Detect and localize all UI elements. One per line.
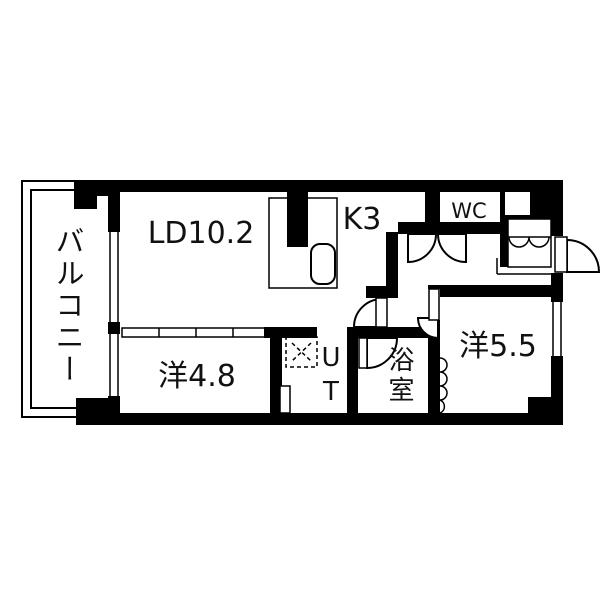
bedroom1-closet-panel xyxy=(280,386,290,413)
label-western-room-1: 洋4.8 xyxy=(158,359,236,394)
entry-door-leaf xyxy=(555,237,567,272)
wall-balcony-block-bottom xyxy=(76,398,120,425)
topright-notch xyxy=(505,192,530,215)
wall-under-wc xyxy=(398,222,500,234)
floorplan-svg: バルコニー LD10.2 K3 WC 洋4.8 UT 浴室 洋5.5 xyxy=(0,0,600,600)
label-balcony: バルコニー xyxy=(51,226,85,386)
wall-ld-hall-foot xyxy=(366,286,398,298)
wall-bottom xyxy=(108,413,563,425)
wall-bath-top xyxy=(347,327,428,338)
bedroom2-door-leaf xyxy=(429,289,439,320)
wall-closet-left xyxy=(500,219,508,267)
wall-bath-left xyxy=(347,327,358,413)
wall-balcony-block-top-step xyxy=(74,180,97,209)
bath-door-leaf xyxy=(359,338,367,368)
label-western-room-2: 洋5.5 xyxy=(459,329,537,364)
label-living-dining: LD10.2 xyxy=(148,216,255,251)
label-toilet: WC xyxy=(451,199,486,223)
wall-bedroom2-top xyxy=(428,285,563,297)
floorplan-canvas: バルコニー LD10.2 K3 WC 洋4.8 UT 浴室 洋5.5 xyxy=(0,0,600,600)
entrance-closet-box xyxy=(508,219,551,267)
sliding-door-partition xyxy=(122,328,270,337)
ld-door-leaf xyxy=(376,298,387,327)
label-utility: UT xyxy=(316,343,346,411)
label-kitchen: K3 xyxy=(343,202,382,237)
wall-top xyxy=(108,180,563,192)
wall-ld-kitchen xyxy=(287,190,308,247)
entrance-closet xyxy=(508,219,551,267)
background xyxy=(0,0,600,600)
wall-bedroom2-corner-step xyxy=(528,397,563,413)
label-bath: 浴室 xyxy=(384,346,414,406)
